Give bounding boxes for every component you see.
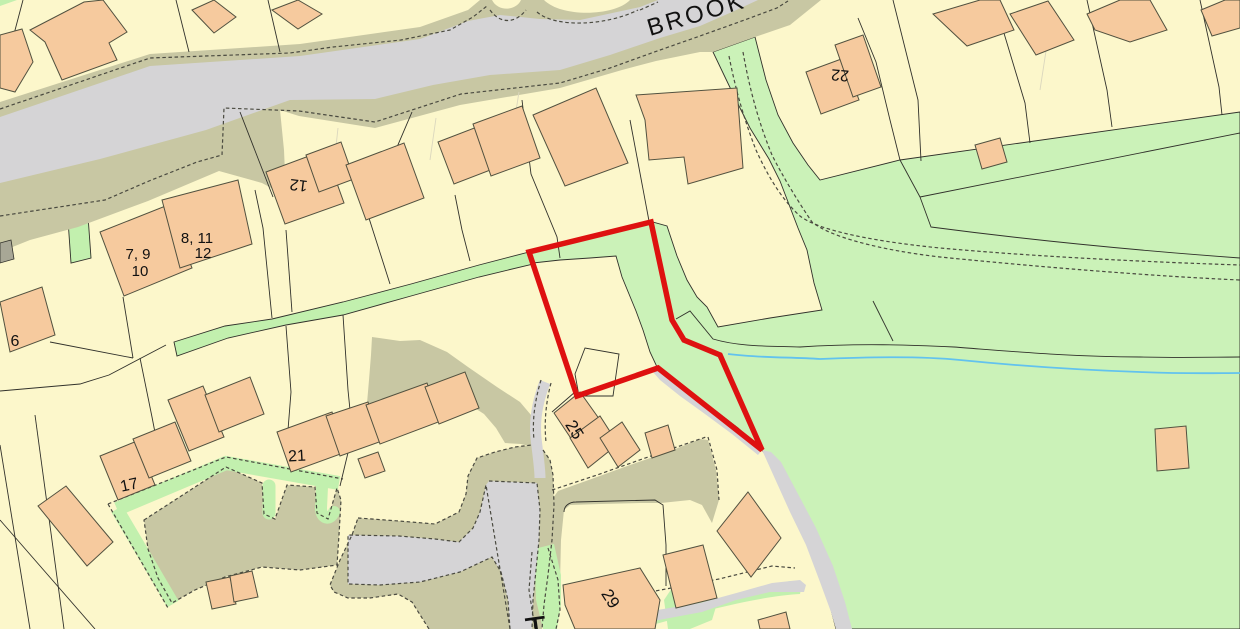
svg-text:21: 21: [288, 448, 307, 466]
svg-text:12: 12: [195, 245, 212, 262]
svg-text:12: 12: [289, 175, 309, 194]
svg-text:22: 22: [830, 65, 849, 83]
svg-text:7, 9: 7, 9: [125, 246, 150, 263]
svg-text:6: 6: [11, 333, 20, 350]
svg-text:10: 10: [132, 263, 149, 280]
svg-text:17: 17: [119, 475, 140, 495]
